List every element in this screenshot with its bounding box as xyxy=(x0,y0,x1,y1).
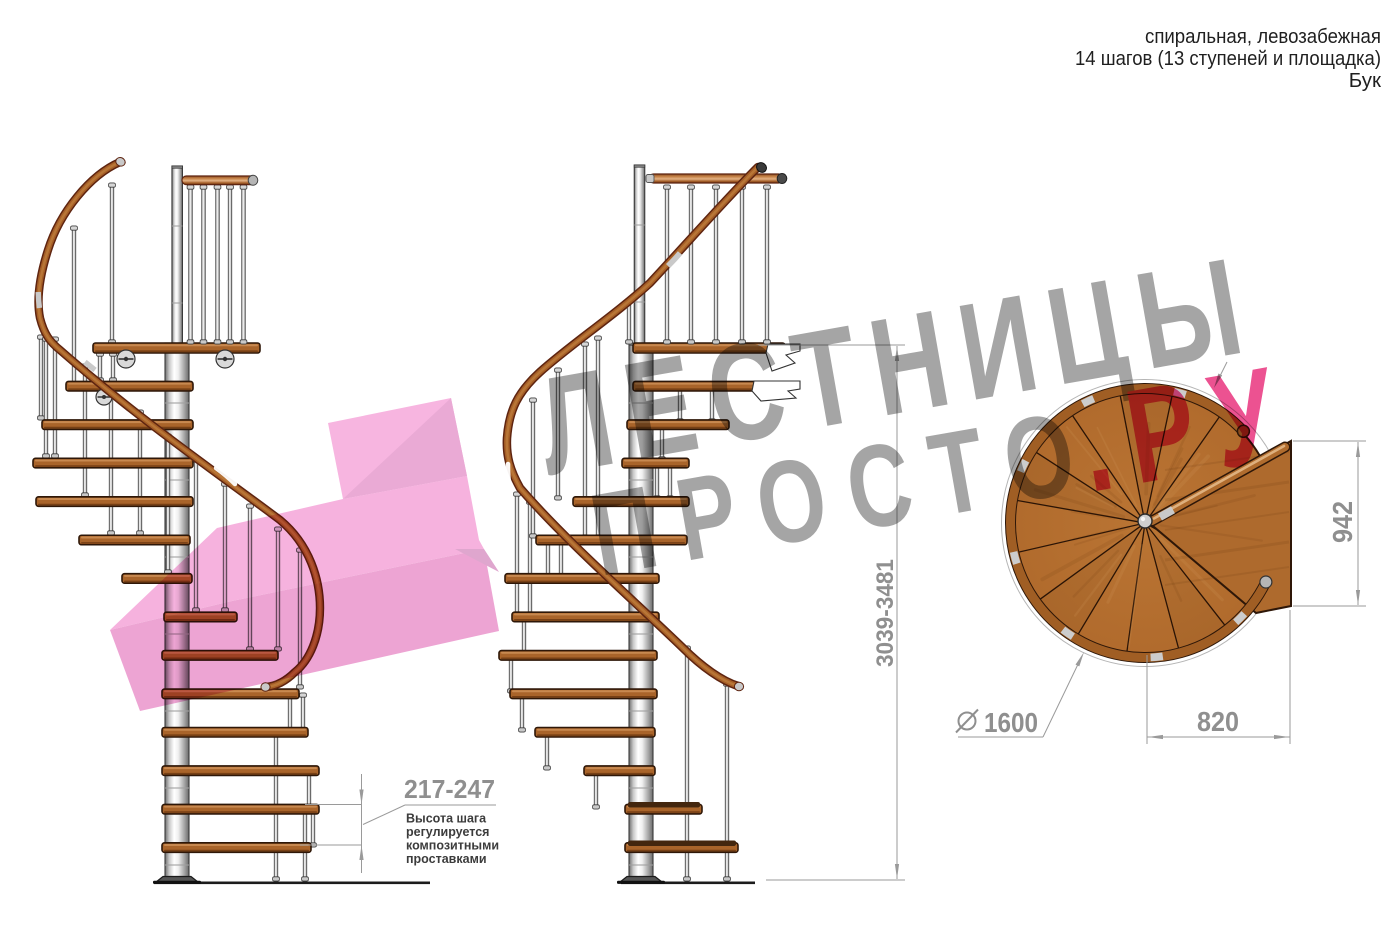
svg-text:1600: 1600 xyxy=(984,707,1038,738)
svg-text:проставками: проставками xyxy=(406,852,487,866)
svg-text:942: 942 xyxy=(1327,501,1358,543)
svg-text:Бук: Бук xyxy=(1349,69,1382,92)
svg-text:820: 820 xyxy=(1197,706,1239,737)
svg-text:композитными: композитными xyxy=(406,839,499,853)
svg-text:Высота шага: Высота шага xyxy=(406,812,487,826)
svg-text:14 шагов (13 ступеней и площад: 14 шагов (13 ступеней и площадка) xyxy=(1075,47,1381,70)
svg-text:217-247: 217-247 xyxy=(404,774,495,804)
svg-text:спиральная, левозабежная: спиральная, левозабежная xyxy=(1145,25,1381,48)
svg-text:регулируется: регулируется xyxy=(406,825,489,839)
svg-text:3039-3481: 3039-3481 xyxy=(872,559,899,667)
